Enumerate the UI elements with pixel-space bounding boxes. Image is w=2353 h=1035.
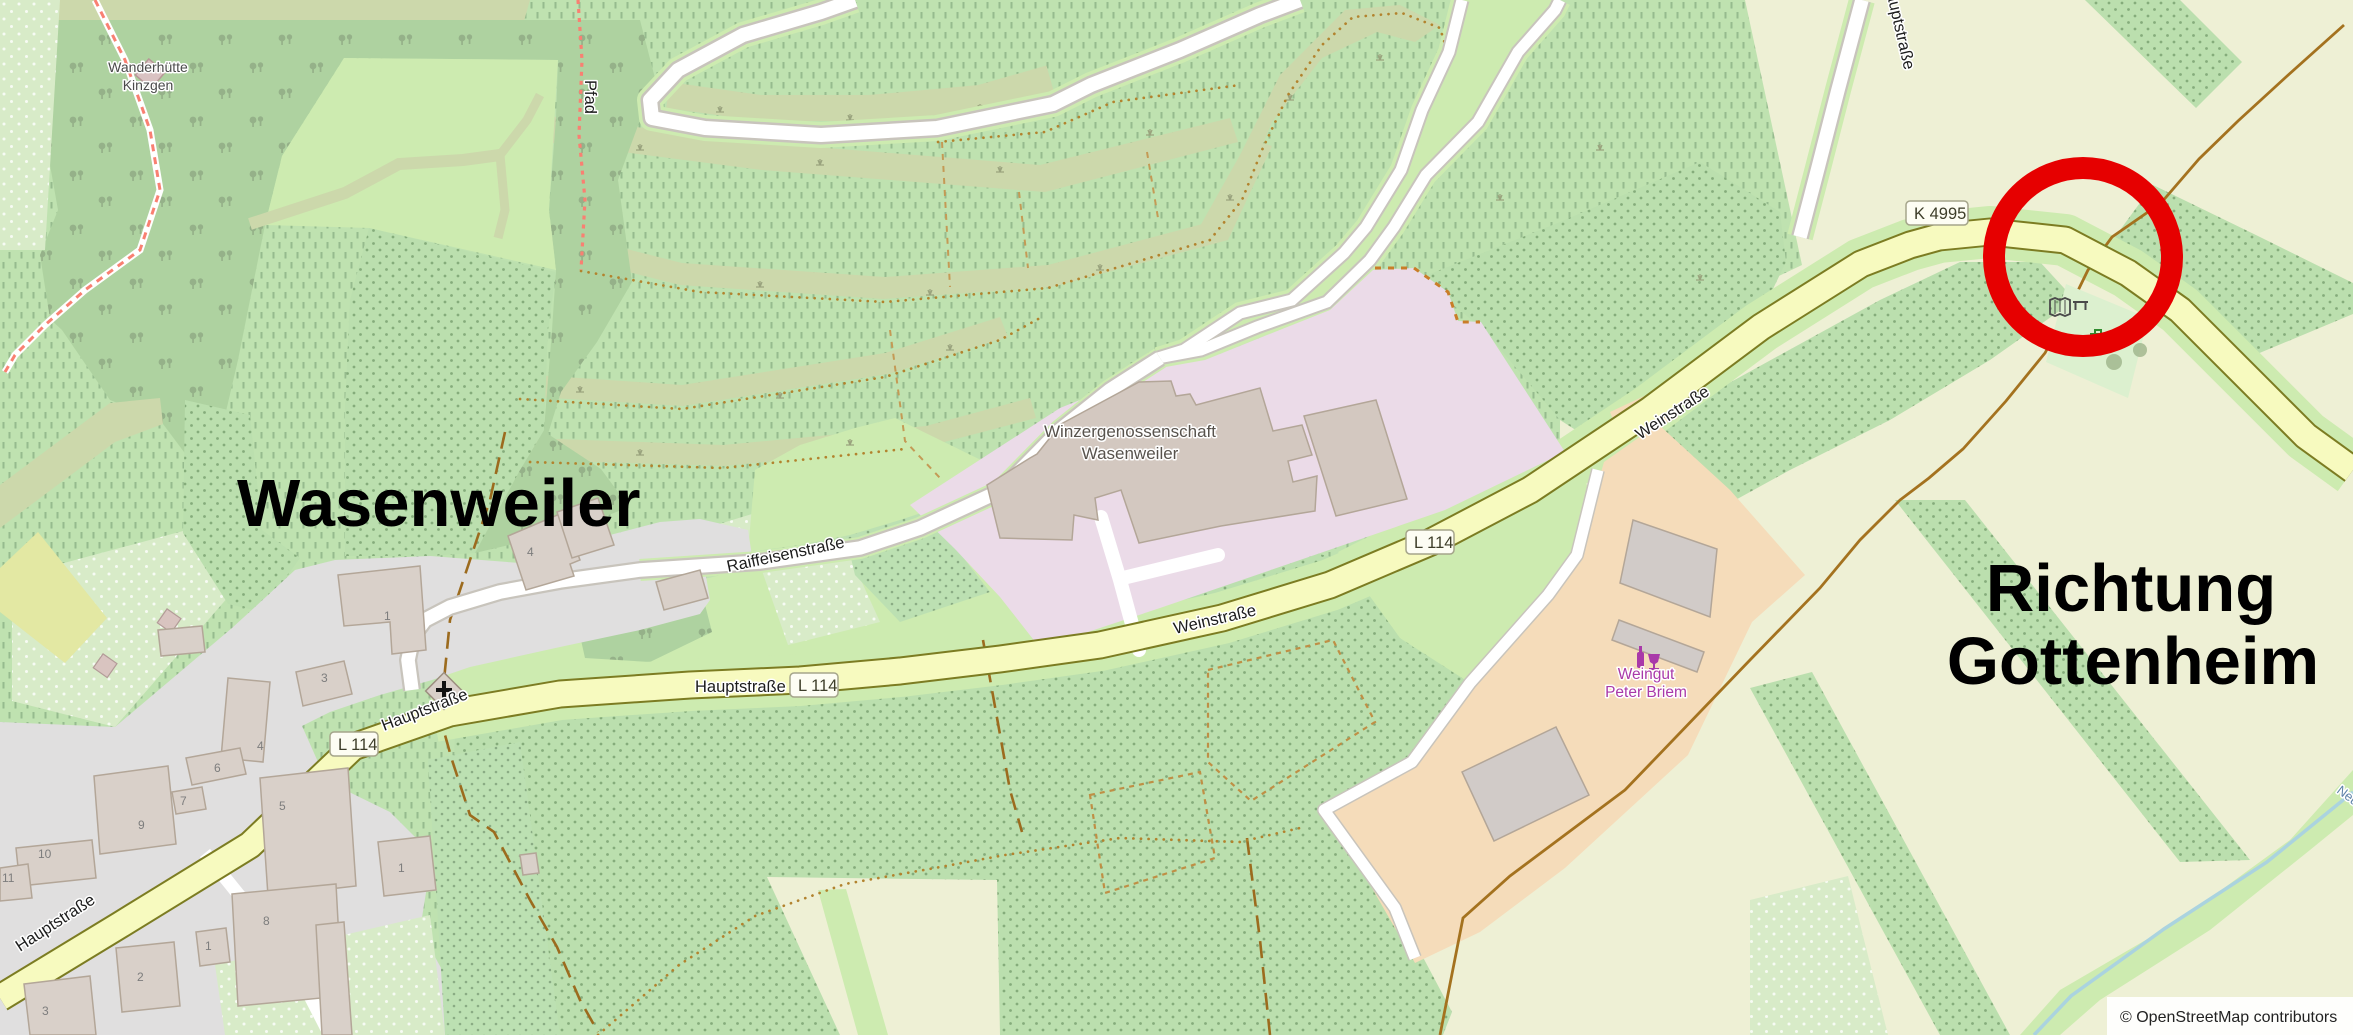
svg-text:Weingut: Weingut bbox=[1618, 666, 1675, 683]
svg-text:Kinzgen: Kinzgen bbox=[123, 77, 174, 93]
svg-text:3: 3 bbox=[321, 671, 328, 685]
svg-text:4: 4 bbox=[527, 545, 534, 559]
svg-text:Hauptstraße: Hauptstraße bbox=[695, 678, 786, 696]
svg-text:L 114: L 114 bbox=[1414, 534, 1453, 552]
svg-text:Wasenweiler: Wasenweiler bbox=[237, 466, 640, 541]
svg-text:9: 9 bbox=[138, 818, 145, 832]
svg-text:L 114: L 114 bbox=[338, 736, 377, 754]
svg-text:Richtung: Richtung bbox=[1986, 551, 2276, 626]
svg-text:© OpenStreetMap contributors: © OpenStreetMap contributors bbox=[2120, 1009, 2337, 1026]
svg-text:6: 6 bbox=[214, 761, 221, 775]
svg-text:Pfad: Pfad bbox=[581, 80, 599, 114]
svg-text:3: 3 bbox=[42, 1004, 49, 1018]
svg-text:11: 11 bbox=[2, 871, 15, 885]
svg-text:2: 2 bbox=[137, 970, 144, 984]
svg-text:L 114: L 114 bbox=[798, 677, 837, 695]
svg-text:Wasenweiler: Wasenweiler bbox=[1082, 444, 1179, 463]
svg-text:K 4995: K 4995 bbox=[1914, 205, 1966, 223]
svg-text:Wanderhütte: Wanderhütte bbox=[108, 59, 188, 75]
svg-text:1: 1 bbox=[398, 861, 405, 875]
svg-text:1: 1 bbox=[384, 609, 391, 623]
svg-text:8: 8 bbox=[263, 914, 270, 928]
svg-text:7: 7 bbox=[180, 794, 187, 808]
svg-text:Gottenheim: Gottenheim bbox=[1947, 624, 2319, 699]
svg-text:4: 4 bbox=[257, 739, 264, 753]
svg-text:10: 10 bbox=[38, 847, 52, 861]
svg-text:Peter Briem: Peter Briem bbox=[1605, 684, 1687, 701]
svg-text:5: 5 bbox=[279, 799, 286, 813]
svg-text:Winzergenossenschaft: Winzergenossenschaft bbox=[1044, 422, 1216, 441]
svg-text:1: 1 bbox=[205, 939, 212, 953]
